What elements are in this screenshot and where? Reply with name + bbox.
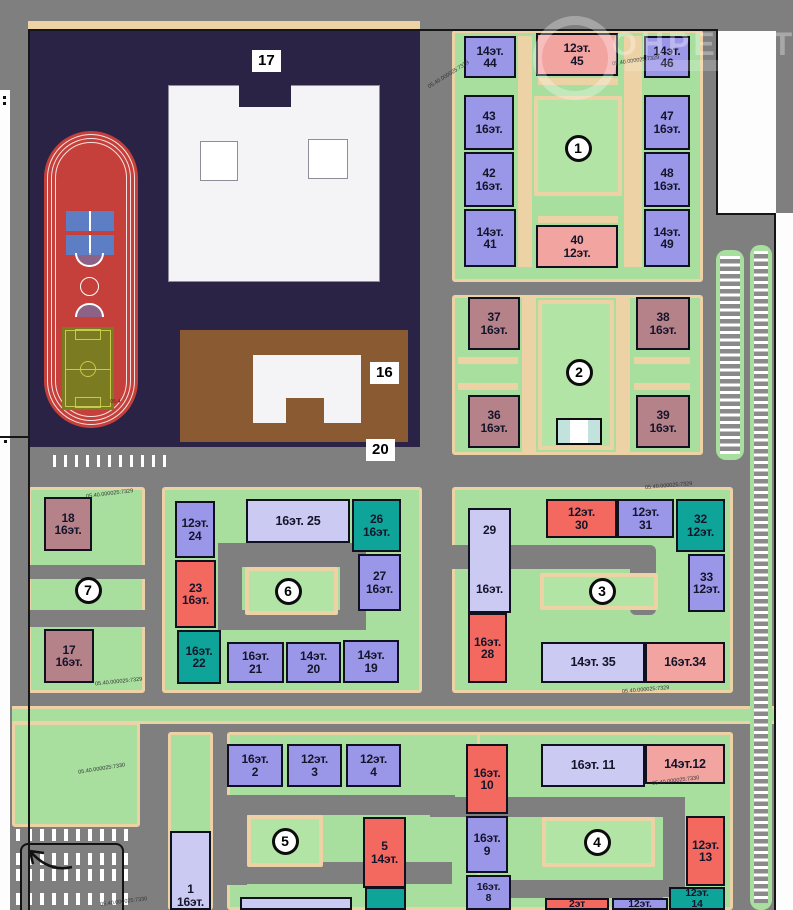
building-label: 16эт.34 <box>664 656 706 669</box>
kindergarten-number-box: 16 <box>370 362 399 384</box>
parking-hatch <box>720 256 740 454</box>
parking-row <box>16 829 136 841</box>
building-7b <box>240 897 352 910</box>
building-11: 16эт. 11 <box>541 744 645 787</box>
building-label: 16эт. <box>242 650 269 662</box>
football-pitch <box>62 327 114 410</box>
building-label: 16эт. <box>476 180 503 192</box>
building-39: 3916эт. <box>636 395 690 448</box>
internal-road <box>230 795 455 815</box>
building-19: 14эт.19 <box>343 640 399 683</box>
path <box>634 357 690 364</box>
building-label: 36 <box>488 409 501 421</box>
school-block: 05.4 <box>28 30 420 447</box>
building-label: 45 <box>571 55 584 67</box>
stadium: 05.4 <box>44 131 138 428</box>
parking-strip <box>716 250 744 460</box>
building-label: 2 <box>252 766 258 778</box>
court-half <box>66 235 89 255</box>
sport-court <box>66 211 114 231</box>
building-label: 30 <box>575 519 588 531</box>
building-label: 16эт. <box>242 753 269 765</box>
building-29: 2916эт. <box>468 508 511 613</box>
building-label: 44 <box>484 57 497 69</box>
building-5: 514эт. <box>363 817 406 888</box>
building-label: 3 <box>311 766 317 778</box>
building-label: 16эт. <box>182 594 209 606</box>
outside-area <box>0 90 10 910</box>
building-label: 12эт. <box>564 42 591 54</box>
building-label: 16эт. <box>55 524 82 536</box>
internal-road <box>28 610 145 627</box>
building-48: 4816эт. <box>644 152 690 207</box>
building-label: 16эт. <box>477 882 500 893</box>
building-12et: 12эт. <box>612 898 668 910</box>
margin-mark <box>4 440 7 443</box>
site-boundary <box>716 213 776 215</box>
building-13: 12эт.13 <box>686 816 725 886</box>
building-42: 4216эт. <box>464 152 514 207</box>
building-label: 12эт. <box>182 517 209 529</box>
path <box>458 383 518 390</box>
building-label: 16эт. <box>476 583 503 595</box>
building-label: 16эт. <box>654 180 681 192</box>
boulevard-median <box>12 706 776 724</box>
outside-area <box>776 213 793 910</box>
building-label: 13 <box>699 851 712 863</box>
building-label: 29 <box>483 524 496 536</box>
path <box>634 383 690 390</box>
building-label: 42 <box>483 167 496 179</box>
building-label: 26 <box>370 513 383 525</box>
court-half <box>91 211 114 231</box>
structure-roof <box>570 420 589 443</box>
building-26: 2616эт. <box>352 499 401 552</box>
building-label: 32 <box>694 513 707 525</box>
block-badge-6: 6 <box>275 578 302 605</box>
building-40: 4012эт. <box>536 225 618 268</box>
roof-court <box>308 139 348 179</box>
street-parking-ticks <box>53 455 167 467</box>
site-boundary <box>716 29 718 215</box>
building-21: 16эт.21 <box>227 642 284 683</box>
green-field <box>12 722 140 827</box>
building-10: 16эт.10 <box>466 744 508 814</box>
building-label: 48 <box>661 167 674 179</box>
sport-court <box>66 235 114 255</box>
kindergarten-notch <box>286 398 324 424</box>
building-label: 16эт. <box>474 832 501 844</box>
goal-box <box>75 397 101 408</box>
building-9: 16эт.9 <box>466 816 508 873</box>
building-label: 5 <box>381 840 387 852</box>
block-badge-2: 2 <box>566 359 593 386</box>
building-label: 19 <box>365 662 378 674</box>
residential-complex-master-plan: 05.4 14эт.444316эт.4216эт.14эт.4112эт.45… <box>0 0 793 910</box>
building-label: 16эт. <box>366 583 393 595</box>
block-badge-4: 4 <box>584 829 611 856</box>
building-label: 12эт. <box>632 506 659 518</box>
building-27: 2716эт. <box>358 554 401 611</box>
school-number-box: 17 <box>252 50 281 72</box>
building-label: 47 <box>661 110 674 122</box>
block-badge-7: 7 <box>75 577 102 604</box>
building-41: 14эт.41 <box>464 209 516 267</box>
building-label: 12эт. <box>564 247 591 259</box>
building-label: 49 <box>661 238 674 250</box>
building-22: 16эт.22 <box>177 630 221 684</box>
site-boundary <box>774 213 776 910</box>
building-1: 116эт. <box>170 831 211 910</box>
court-half <box>91 235 114 255</box>
stadium-code: 05.4 <box>110 399 121 405</box>
small-structure <box>556 418 602 445</box>
building-49: 14эт.49 <box>644 209 690 267</box>
building-label: 14эт. <box>358 649 385 661</box>
building-label: 14эт.12 <box>664 758 706 771</box>
building-label: 37 <box>488 311 501 323</box>
building-label: 16эт. 11 <box>571 759 615 772</box>
building-36: 3616эт. <box>468 395 520 448</box>
building-label: 14эт. 35 <box>571 656 616 669</box>
building-label: 16эт. <box>654 123 681 135</box>
site-boundary <box>28 29 30 910</box>
site-boundary <box>28 29 718 31</box>
internal-road <box>663 797 685 897</box>
path <box>538 78 618 85</box>
building-label: 1 <box>187 883 193 895</box>
building-32: 3212эт. <box>676 499 725 552</box>
court-half <box>66 211 89 231</box>
building-label: 9 <box>484 845 490 857</box>
margin-mark <box>3 96 6 99</box>
building-label: 14 <box>691 899 702 910</box>
parking-strip <box>750 245 772 910</box>
building-label: 28 <box>481 648 494 660</box>
pitch-center-circle <box>80 361 96 377</box>
building-label: 12эт. <box>685 888 708 899</box>
path <box>518 36 532 267</box>
building-label: 12эт. <box>360 753 387 765</box>
building-31: 12эт.31 <box>617 499 674 538</box>
building-label: 16эт. <box>56 656 83 668</box>
building-label: 20 <box>307 663 320 675</box>
building-label: 43 <box>483 110 496 122</box>
building-30: 12эт.30 <box>546 499 617 538</box>
building-label: 39 <box>657 409 670 421</box>
building-18: 1816эт. <box>44 497 92 551</box>
building-label: 22 <box>193 657 206 669</box>
building-4: 12эт.4 <box>346 744 401 787</box>
building-8: 16эт.8 <box>466 875 511 910</box>
building-33: 3312эт. <box>688 554 725 612</box>
school-building <box>168 85 380 282</box>
building-14: 12эт.14 <box>669 887 725 910</box>
internal-road <box>497 880 663 898</box>
building-label: 12эт. <box>301 753 328 765</box>
roof-notch <box>239 85 291 107</box>
building-44: 14эт.44 <box>464 36 516 78</box>
building-label: 16эт. <box>476 123 503 135</box>
building-label: 24 <box>189 530 202 542</box>
building-label: 46 <box>661 57 674 69</box>
block-badge-3: 3 <box>589 578 616 605</box>
basketball-center-circle <box>80 277 99 296</box>
building-label: 27 <box>373 570 386 582</box>
building-label: 10 <box>481 779 494 791</box>
margin-mark <box>3 102 6 105</box>
building-2et: 2эт <box>545 898 609 910</box>
building-23: 2316эт. <box>175 560 216 628</box>
building-6 <box>365 887 406 910</box>
path <box>538 216 618 223</box>
building-label: 16эт. <box>481 324 508 336</box>
block-badge-1: 1 <box>565 135 592 162</box>
building-label: 16эт. <box>650 324 677 336</box>
path <box>616 298 630 452</box>
block-badge-5: 5 <box>272 828 299 855</box>
building-47: 4716эт. <box>644 95 690 150</box>
parking-lot <box>12 827 140 910</box>
parking-hatch <box>754 251 768 904</box>
building-34: 16эт.34 <box>645 642 725 683</box>
site-boundary <box>0 436 28 438</box>
road-number-box: 20 <box>366 439 395 461</box>
building-38: 3816эт. <box>636 297 690 350</box>
building-label: 12эт. <box>693 583 720 595</box>
building-label: 12эт. <box>628 899 651 910</box>
building-label: 16эт. <box>650 422 677 434</box>
building-label: 12эт. <box>568 506 595 518</box>
building-37: 3716эт. <box>468 297 520 350</box>
building-24: 12эт.24 <box>175 501 215 558</box>
building-label: 31 <box>639 519 652 531</box>
building-20: 14эт.20 <box>286 642 341 683</box>
building-35: 14эт. 35 <box>541 642 645 683</box>
building-label: 38 <box>657 311 670 323</box>
path <box>458 357 518 364</box>
building-label: 16эт. <box>177 896 204 908</box>
building-17: 1716эт. <box>44 629 94 683</box>
path <box>522 298 536 452</box>
building-label: 41 <box>484 238 497 250</box>
outside-area <box>718 31 776 213</box>
building-label: 14эт. <box>371 853 398 865</box>
building-label: 16эт. <box>363 526 390 538</box>
goal-box <box>75 329 101 340</box>
building-label: 4 <box>370 766 376 778</box>
building-label: 12эт. <box>687 526 714 538</box>
kindergarten-block <box>180 330 408 442</box>
building-label: 8 <box>486 893 492 904</box>
building-label: 40 <box>571 234 584 246</box>
building-25: 16эт. 25 <box>246 499 350 543</box>
building-2: 16эт.2 <box>227 744 283 787</box>
building-28: 16эт.28 <box>468 613 507 683</box>
building-3: 12эт.3 <box>287 744 342 787</box>
roof-court <box>200 141 238 181</box>
building-label: 21 <box>249 663 262 675</box>
building-45: 12эт.45 <box>536 33 618 76</box>
path <box>624 36 642 267</box>
building-label: 16эт. 25 <box>276 515 321 528</box>
building-43: 4316эт. <box>464 95 514 150</box>
building-label: 2эт <box>569 899 585 910</box>
building-label: 16эт. <box>481 422 508 434</box>
building-label: 14эт. <box>300 650 327 662</box>
